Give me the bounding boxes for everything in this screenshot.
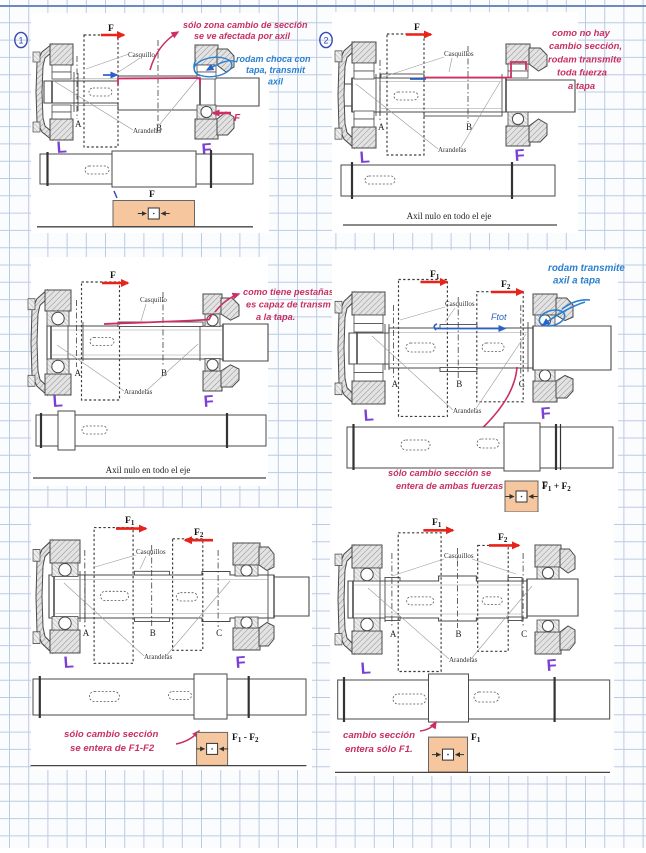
svg-text:Casquillos: Casquillos [444, 552, 474, 560]
svg-text:Arandelas: Arandelas [144, 653, 173, 661]
svg-text:F: F [546, 656, 557, 675]
svg-text:A: A [378, 122, 385, 132]
svg-text:F: F [540, 404, 551, 423]
svg-text:F1 + F2: F1 + F2 [542, 482, 571, 493]
svg-text:L: L [359, 148, 370, 167]
svg-text:C: C [521, 629, 527, 639]
svg-text:B: B [456, 379, 462, 389]
svg-text:F: F [234, 113, 241, 124]
svg-text:L: L [360, 659, 371, 678]
svg-text:Casquillos: Casquillos [136, 548, 166, 556]
svg-text:F: F [203, 392, 214, 411]
svg-text:2: 2 [323, 36, 328, 46]
svg-text:A: A [75, 368, 82, 378]
svg-text:A: A [390, 629, 397, 639]
svg-text:A: A [392, 379, 399, 389]
svg-text:A: A [83, 628, 90, 638]
svg-text:C: C [216, 628, 222, 638]
svg-text:F: F [235, 653, 246, 672]
svg-text:Arandelas: Arandelas [449, 656, 478, 664]
svg-text:Axil nulo en todo el eje: Axil nulo en todo el eje [106, 465, 191, 475]
svg-text:A: A [75, 119, 82, 129]
svg-text:sólo zona cambio de secciónse: sólo zona cambio de secciónse ve afectad… [183, 20, 308, 41]
svg-text:Axil nulo en todo el eje: Axil nulo en todo el eje [407, 211, 492, 221]
svg-text:F: F [414, 23, 420, 33]
svg-text:F: F [149, 190, 155, 200]
svg-text:F: F [110, 271, 116, 281]
svg-text:Arandelas: Arandelas [453, 407, 482, 415]
svg-text:B: B [456, 629, 462, 639]
svg-text:F: F [108, 24, 114, 34]
svg-text:L: L [63, 653, 74, 672]
svg-text:Ftot: Ftot [491, 312, 507, 322]
svg-text:Arandelas: Arandelas [133, 127, 162, 135]
svg-text:F1 - F2: F1 - F2 [232, 733, 259, 744]
svg-text:F: F [514, 146, 525, 165]
svg-text:Arandelas: Arandelas [438, 146, 467, 154]
svg-text:L: L [52, 392, 63, 411]
svg-text:Casquillo: Casquillo [128, 51, 155, 59]
svg-text:Casquillos: Casquillos [444, 50, 474, 58]
svg-text:C: C [519, 379, 525, 389]
svg-text:B: B [150, 628, 156, 638]
svg-text:Casquillos: Casquillos [445, 300, 475, 308]
svg-text:1: 1 [18, 36, 23, 46]
svg-text:Casquillo: Casquillo [140, 296, 167, 304]
svg-text:L: L [363, 406, 374, 425]
